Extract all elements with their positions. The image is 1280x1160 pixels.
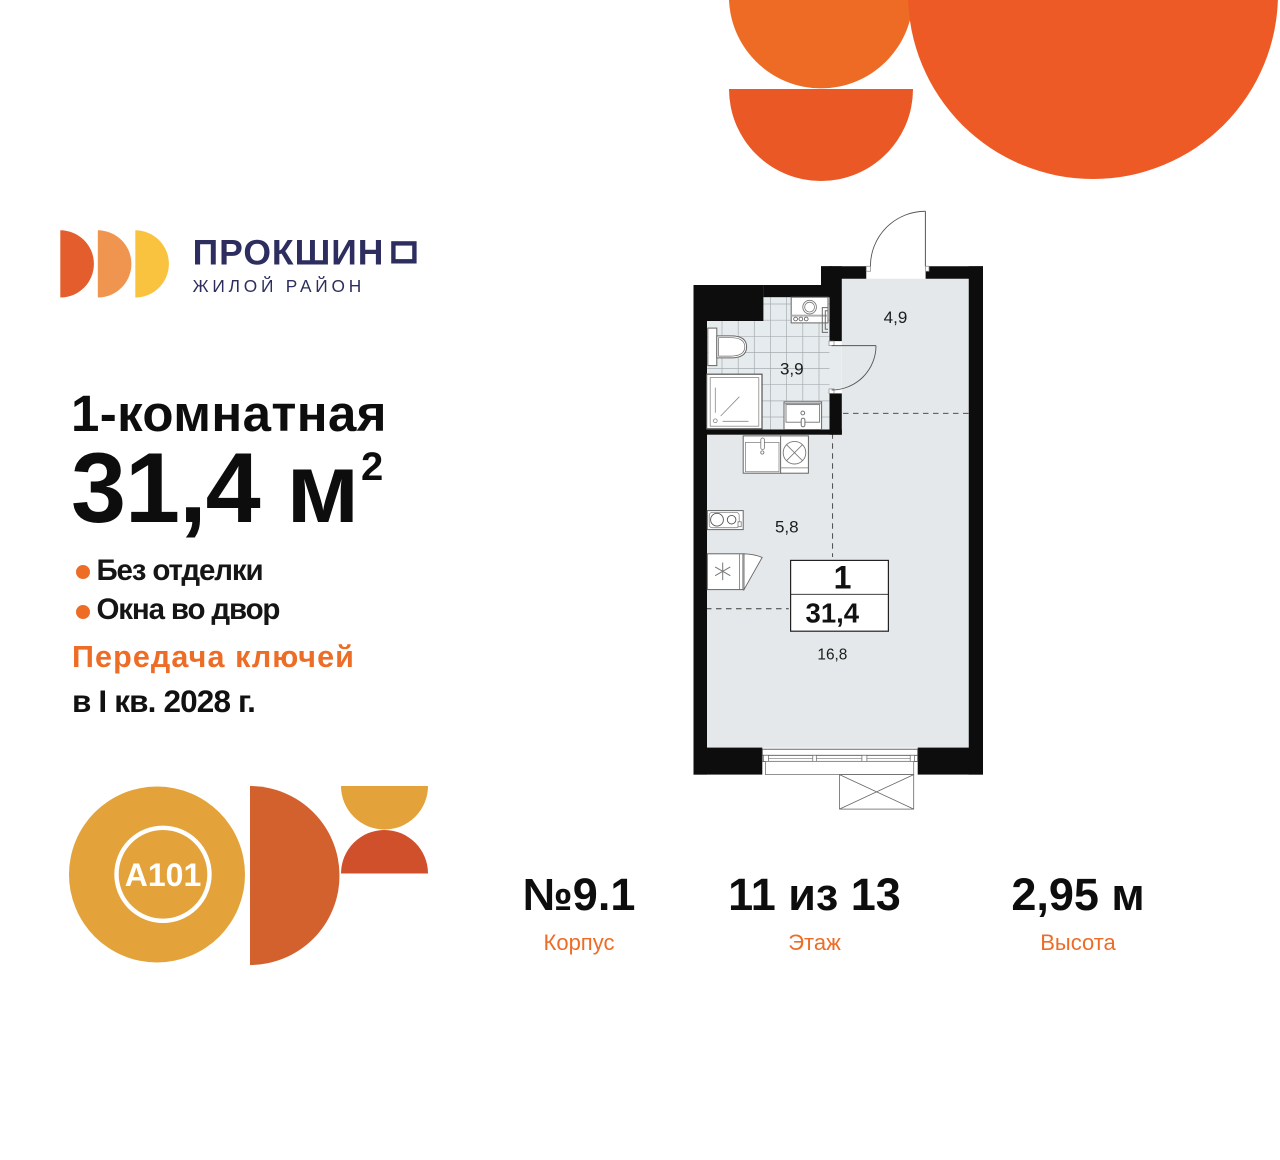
svg-text:1: 1 — [834, 560, 852, 596]
svg-text:16,8: 16,8 — [817, 647, 847, 664]
svg-text:5,8: 5,8 — [775, 518, 799, 537]
svg-text:ЖИЛОЙ РАЙОН: ЖИЛОЙ РАЙОН — [193, 276, 365, 296]
svg-text:A101: A101 — [125, 857, 202, 893]
svg-text:3,9: 3,9 — [780, 360, 804, 379]
svg-text:4,9: 4,9 — [884, 308, 908, 327]
svg-text:ПРОКШИН: ПРОКШИН — [193, 233, 385, 273]
svg-text:31,4: 31,4 — [806, 597, 860, 628]
